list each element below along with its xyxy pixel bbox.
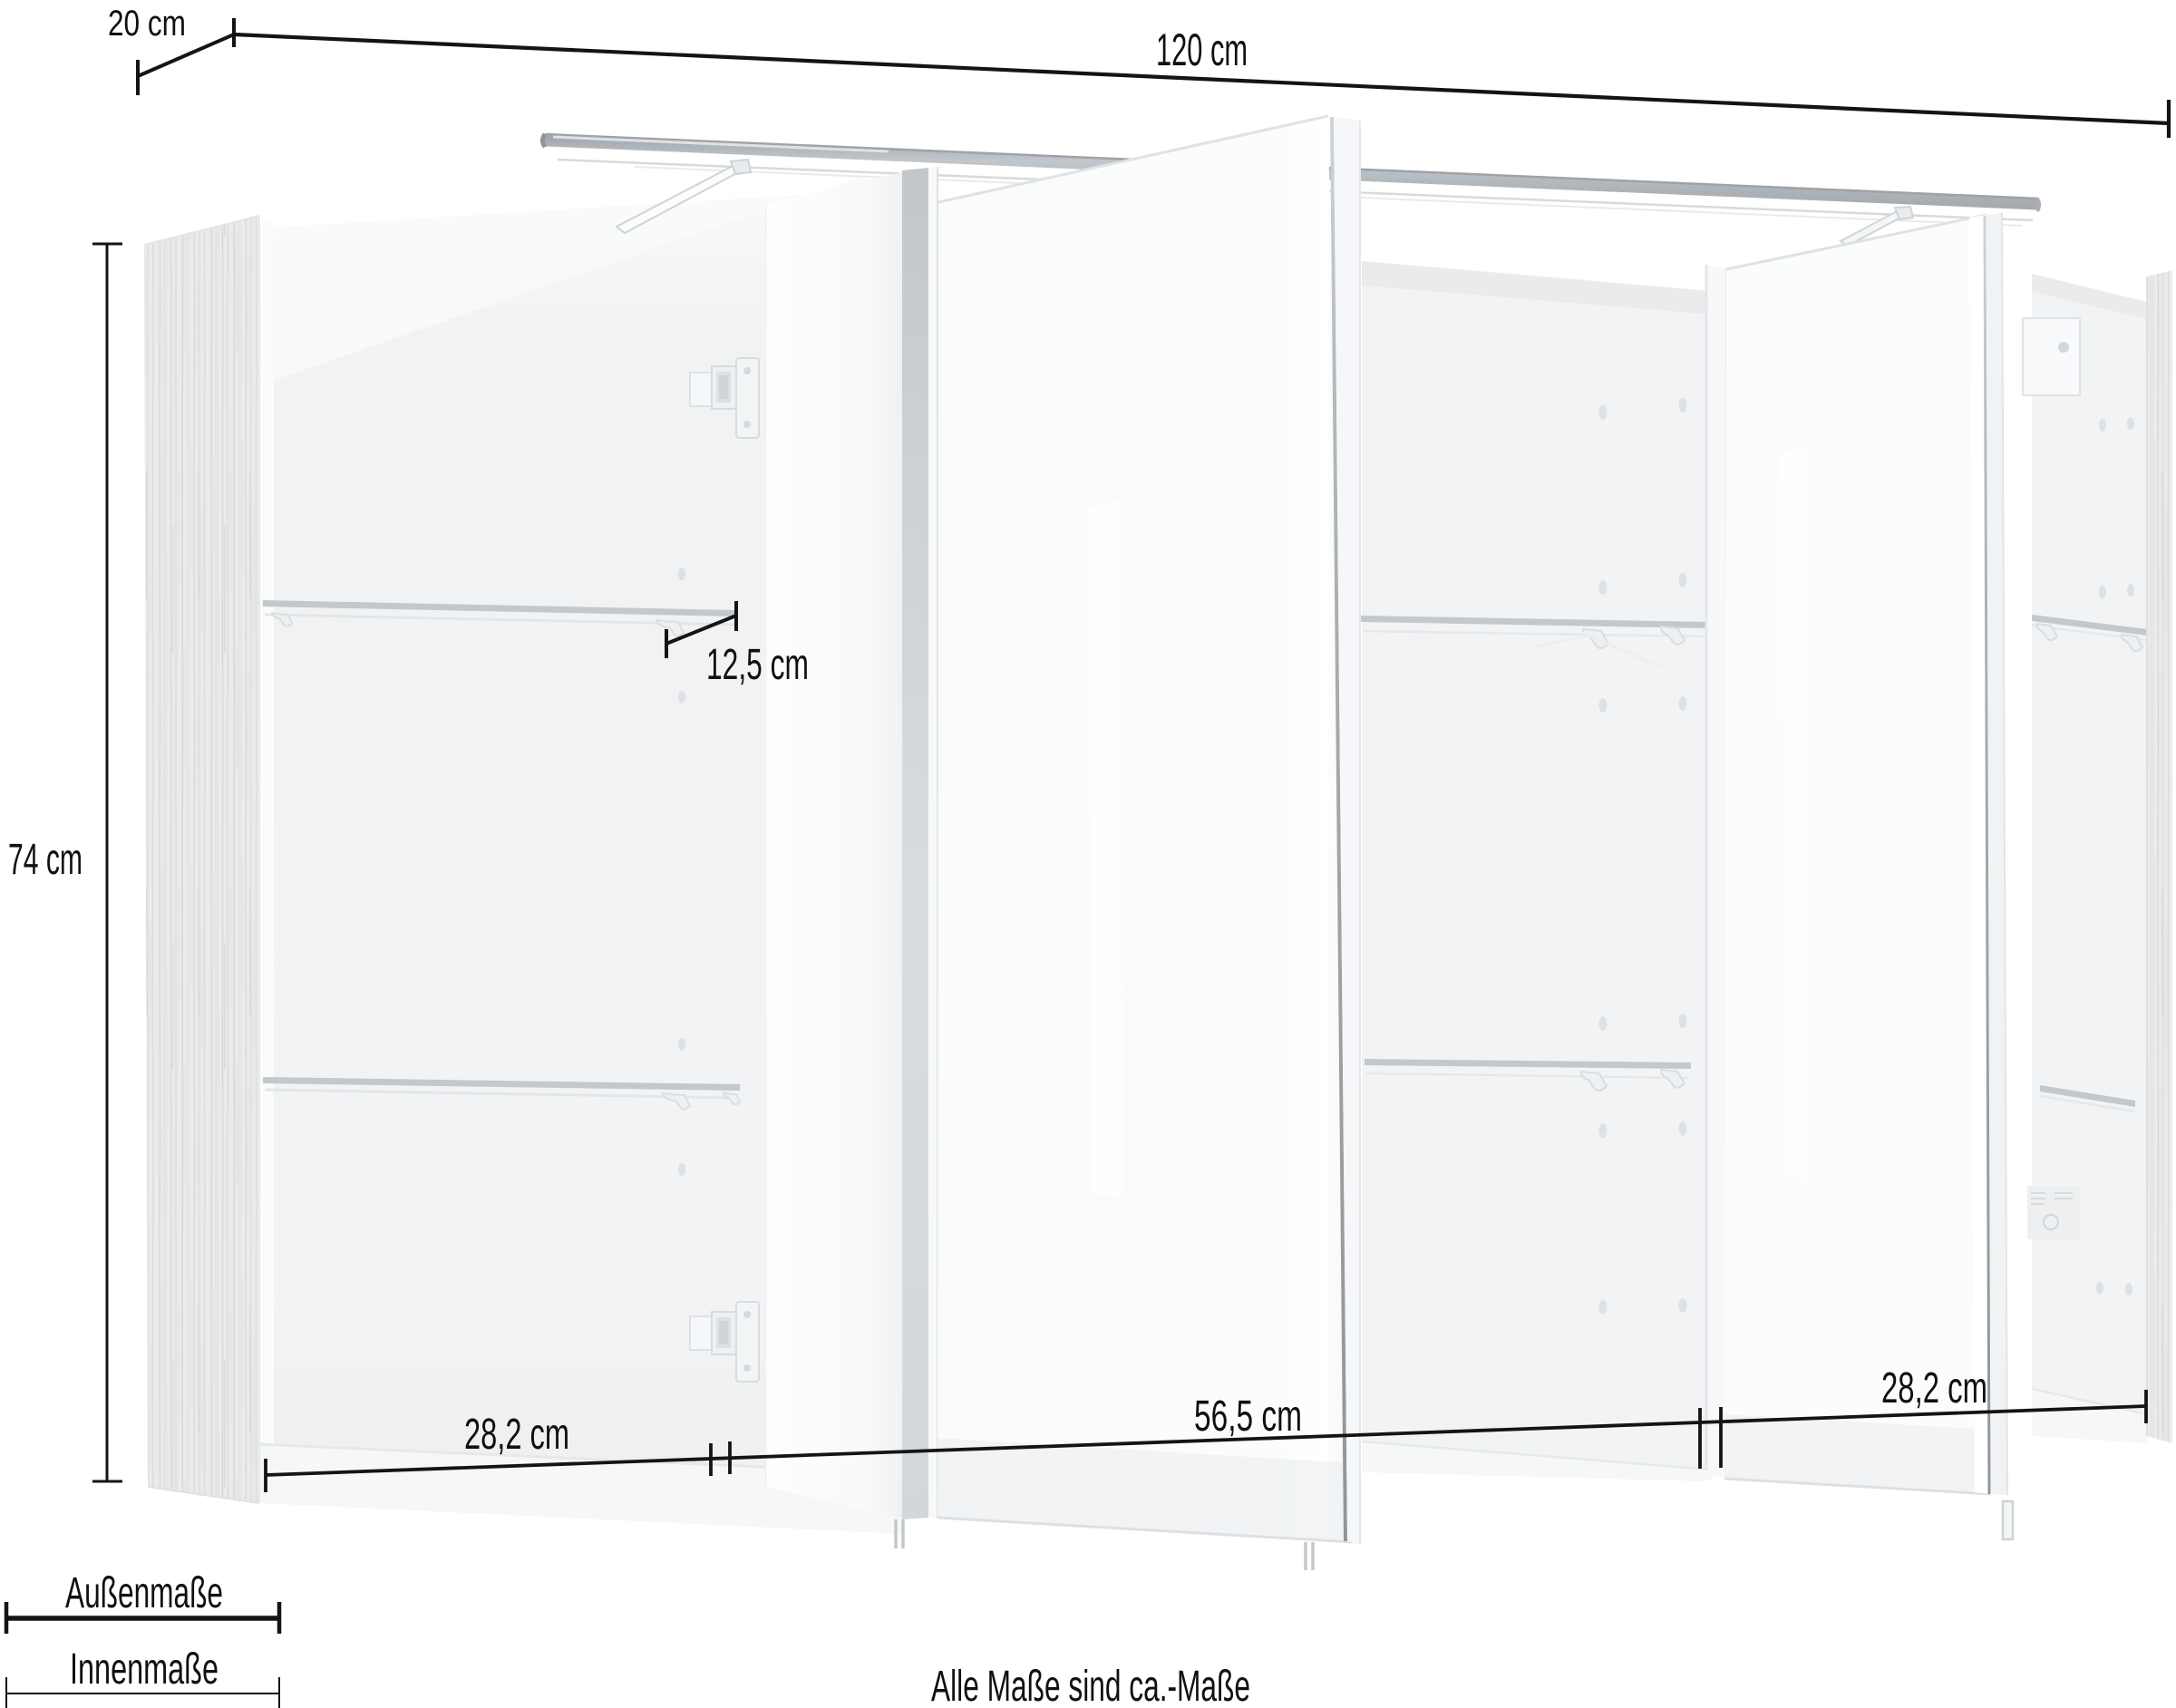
svg-text:Außenmaße: Außenmaße xyxy=(65,1569,223,1617)
svg-text:74 cm: 74 cm xyxy=(8,836,83,884)
svg-text:28,2 cm: 28,2 cm xyxy=(1881,1364,1987,1412)
svg-text:56,5 cm: 56,5 cm xyxy=(1194,1393,1302,1441)
svg-text:12,5 cm: 12,5 cm xyxy=(706,641,809,689)
svg-text:Innenmaße: Innenmaße xyxy=(70,1645,219,1693)
svg-text:20 cm: 20 cm xyxy=(108,4,186,44)
svg-text:Alle Maße sind ca.-Maße: Alle Maße sind ca.-Maße xyxy=(931,1663,1250,1708)
svg-text:120 cm: 120 cm xyxy=(1156,24,1248,75)
svg-text:28,2 cm: 28,2 cm xyxy=(464,1411,569,1459)
